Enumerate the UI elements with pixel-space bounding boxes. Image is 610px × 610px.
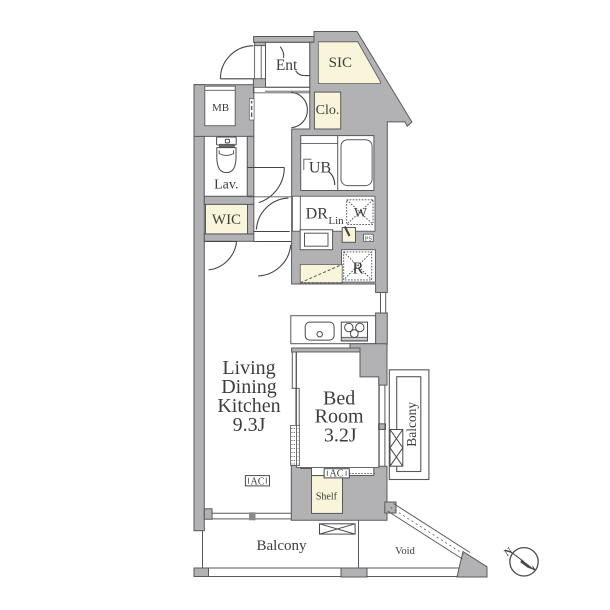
svg-text:Ent: Ent <box>276 57 298 74</box>
svg-text:AC: AC <box>330 469 344 480</box>
svg-text:Balcony: Balcony <box>257 538 307 554</box>
svg-text:3.2J: 3.2J <box>324 424 357 446</box>
svg-text:DR: DR <box>306 206 329 223</box>
svg-text:MB: MB <box>212 102 229 114</box>
svg-text:SIC: SIC <box>329 55 352 71</box>
svg-text:Void: Void <box>395 546 415 557</box>
svg-text:W: W <box>354 206 368 221</box>
svg-text:UB: UB <box>309 160 331 177</box>
svg-text:Balcony: Balcony <box>404 402 419 447</box>
svg-text:Clo.: Clo. <box>316 103 340 118</box>
svg-text:Shelf: Shelf <box>316 492 338 503</box>
svg-text:9.3J: 9.3J <box>233 414 266 436</box>
svg-text:Lav.: Lav. <box>214 178 238 193</box>
svg-text:Lin: Lin <box>328 215 344 227</box>
svg-text:WIC: WIC <box>212 212 241 228</box>
svg-text:R: R <box>352 259 364 278</box>
svg-text:AC: AC <box>251 477 265 488</box>
svg-text:PS: PS <box>365 236 373 243</box>
